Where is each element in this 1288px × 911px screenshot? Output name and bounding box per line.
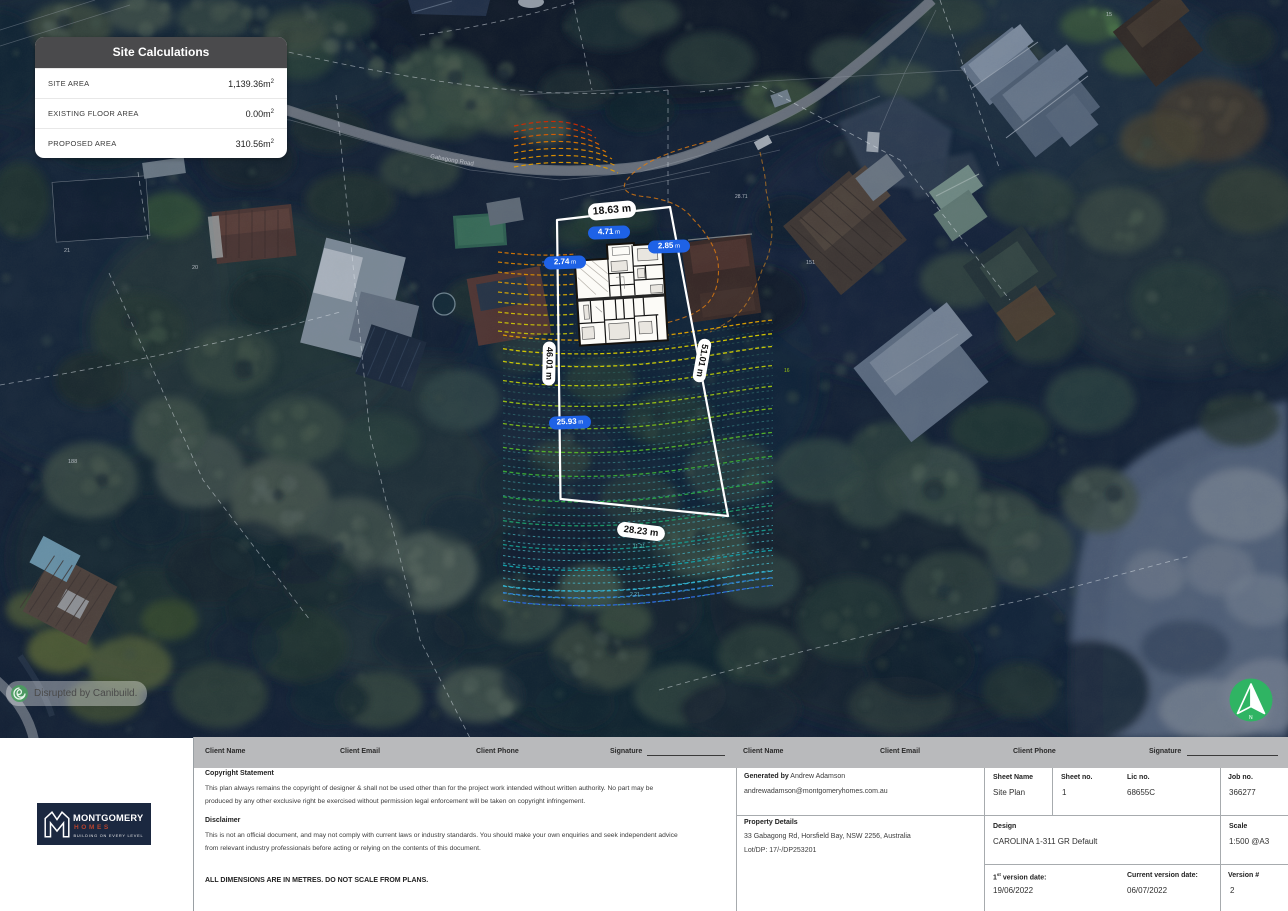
svg-text:16: 16 xyxy=(784,368,790,374)
svg-text:21: 21 xyxy=(64,248,70,254)
svg-text:N: N xyxy=(1249,715,1253,721)
svg-text:11.21: 11.21 xyxy=(633,544,645,550)
svg-text:28.71: 28.71 xyxy=(735,194,748,200)
svg-text:20: 20 xyxy=(192,265,198,271)
svg-text:15: 15 xyxy=(1106,12,1112,18)
svg-text:2.21: 2.21 xyxy=(630,592,640,598)
svg-text:15.56: 15.56 xyxy=(630,508,643,514)
svg-text:151: 151 xyxy=(806,260,815,266)
svg-text:188: 188 xyxy=(68,459,77,465)
